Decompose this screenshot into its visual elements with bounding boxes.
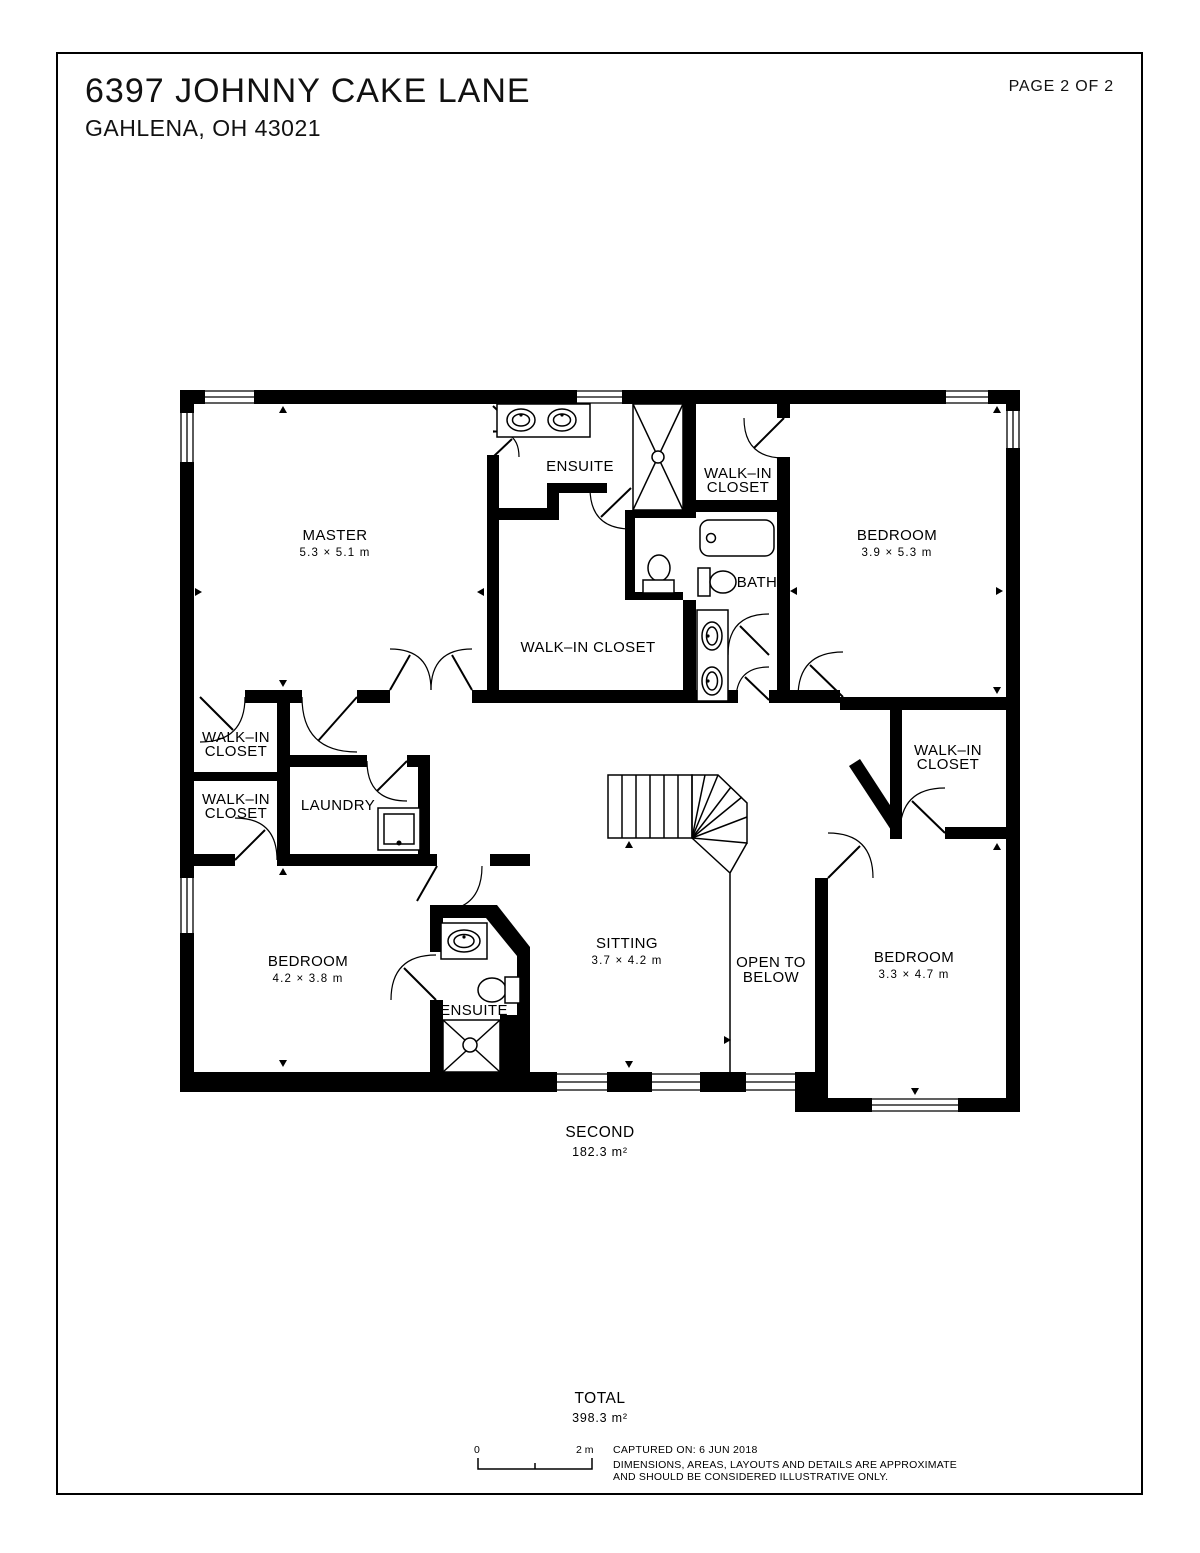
walls xyxy=(180,390,1020,1112)
room-label-bedroom-bl: BEDROOM xyxy=(268,953,348,970)
room-label-wic-left2-2: CLOSET xyxy=(205,805,267,822)
sink xyxy=(441,923,487,959)
floor-plan: MASTER 5.3 × 5.1 m ENSUITE WALK–IN CLOSE… xyxy=(0,0,1200,1553)
room-label-bedroom-tr: BEDROOM xyxy=(857,527,937,544)
door xyxy=(590,488,631,529)
door xyxy=(431,649,472,690)
door xyxy=(302,697,357,752)
window xyxy=(872,1098,958,1112)
door xyxy=(744,418,784,458)
toilet xyxy=(643,555,674,593)
room-dims-master: 5.3 × 5.1 m xyxy=(299,547,370,559)
window xyxy=(652,1072,700,1092)
double-sink-vanity xyxy=(697,610,728,701)
room-label-sitting: SITTING xyxy=(596,935,658,952)
door xyxy=(828,833,873,878)
shower xyxy=(443,1020,500,1072)
window xyxy=(746,1072,795,1092)
floorplan-page: 6397 JOHNNY CAKE LANE GAHLENA, OH 43021 … xyxy=(0,0,1200,1553)
scale-start-label: 0 xyxy=(474,1444,480,1456)
window xyxy=(205,390,254,404)
staircase xyxy=(608,775,747,1072)
window xyxy=(946,390,988,404)
bathtub xyxy=(700,520,774,556)
door xyxy=(728,614,769,655)
room-label-ensuite-top: ENSUITE xyxy=(546,458,614,475)
scale-bar xyxy=(478,1458,592,1469)
room-dims-bedroom-bl: 4.2 × 3.8 m xyxy=(272,973,343,985)
window xyxy=(557,1072,607,1092)
floor-area: 182.3 m² xyxy=(450,1145,750,1159)
door xyxy=(417,866,482,911)
captured-on-text: CAPTURED ON: 6 JUN 2018 xyxy=(613,1444,758,1456)
room-label-wic-top-right-2: CLOSET xyxy=(707,479,769,496)
room-label-wic-master: WALK–IN CLOSET xyxy=(520,639,655,656)
door xyxy=(367,761,407,801)
room-label-laundry: LAUNDRY xyxy=(301,797,375,814)
room-label-wic-left1-2: CLOSET xyxy=(205,743,267,760)
disclaimer-line1: DIMENSIONS, AREAS, LAYOUTS AND DETAILS A… xyxy=(613,1460,957,1472)
shower xyxy=(633,404,683,510)
door xyxy=(390,649,431,690)
room-dims-sitting: 3.7 × 4.2 m xyxy=(591,955,662,967)
door xyxy=(235,818,277,860)
door xyxy=(391,955,436,1000)
toilet xyxy=(478,977,520,1003)
scale-end-label: 2 m xyxy=(576,1444,594,1456)
total-area: 398.3 m² xyxy=(450,1411,750,1425)
room-label-bedroom-br: BEDROOM xyxy=(874,949,954,966)
room-label-ensuite-bottom: ENSUITE xyxy=(440,1002,508,1019)
room-dims-bedroom-br: 3.3 × 4.7 m xyxy=(878,969,949,981)
total-label: TOTAL xyxy=(450,1390,750,1408)
window xyxy=(180,413,194,462)
dimension-markers xyxy=(195,406,1003,1095)
room-label-master: MASTER xyxy=(303,527,368,544)
window xyxy=(577,390,622,404)
room-label-open-below-2: BELOW xyxy=(743,969,800,986)
double-sink-vanity xyxy=(497,404,590,437)
disclaimer-text: DIMENSIONS, AREAS, LAYOUTS AND DETAILS A… xyxy=(613,1460,957,1483)
floor-name: SECOND xyxy=(450,1124,750,1142)
room-label-bath: BATH xyxy=(737,574,778,591)
door xyxy=(736,667,769,700)
window xyxy=(180,878,194,933)
disclaimer-line2: AND SHOULD BE CONSIDERED ILLUSTRATIVE ON… xyxy=(613,1472,957,1484)
toilet xyxy=(698,568,736,596)
window xyxy=(1006,411,1020,448)
washing-machine xyxy=(378,808,420,850)
room-label-wic-right-2: CLOSET xyxy=(917,756,979,773)
door xyxy=(900,788,945,833)
room-dims-bedroom-tr: 3.9 × 5.3 m xyxy=(861,547,932,559)
